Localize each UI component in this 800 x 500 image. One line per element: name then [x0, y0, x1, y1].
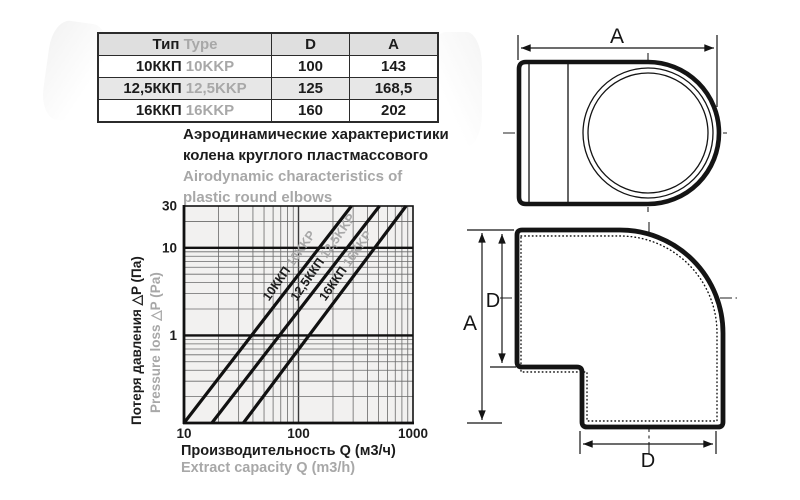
header-type-ru: Тип — [153, 36, 180, 53]
row-a-value: 202 — [350, 100, 437, 121]
y-tick-label: 30 — [162, 199, 177, 214]
row-type-ru: 10ККП — [136, 58, 182, 75]
dim-label-d-side: D — [486, 290, 500, 312]
elbow-technical-drawings: A A D D — [450, 10, 800, 490]
dim-label-a-top: A — [610, 25, 624, 48]
table-row: 10ККП 10KKP 100 143 — [99, 55, 437, 77]
chart-title-ru-2: колена круглого пластмассового — [183, 145, 449, 166]
header-type: Тип Type — [99, 34, 272, 55]
table-header-row: Тип Type D A — [99, 34, 437, 55]
y-tick-label: 10 — [162, 240, 177, 255]
spec-table: Тип Type D A 10ККП 10KKP 100 143 12,5ККП… — [97, 32, 439, 123]
row-type-ru: 12,5ККП — [123, 80, 181, 97]
header-type-en: Type — [184, 36, 218, 53]
elbow-top-view: A — [503, 25, 727, 212]
row-type-ru: 16ККП — [136, 102, 182, 119]
x-axis-title: Производительность Q (м3/ч) Extract capa… — [181, 443, 396, 477]
catalog-page: { "table": { "header": {"type_ru": "Тип"… — [0, 0, 800, 500]
dim-label-a-side: A — [463, 312, 477, 335]
row-d-value: 100 — [272, 56, 350, 77]
table-row: 12,5ККП 12,5KKP 125 168,5 — [99, 77, 437, 99]
x-axis-label-en: Extract capacity Q (m3/h) — [181, 460, 396, 477]
elbow-side-view: A D D — [463, 222, 737, 472]
x-tick-label: 100 — [287, 426, 310, 441]
x-tick-label: 10 — [176, 426, 191, 441]
row-d-value: 125 — [272, 78, 350, 99]
x-tick-label: 1000 — [398, 426, 428, 441]
header-a: A — [350, 34, 437, 55]
row-type-en: 16KKP — [186, 102, 234, 119]
y-axis-label-ru: Потеря давления △P (Па) — [129, 256, 145, 425]
y-tick-label: 1 — [169, 328, 177, 343]
x-axis-label-ru: Производительность Q (м3/ч) — [181, 443, 396, 460]
row-a-value: 168,5 — [350, 78, 437, 99]
chart-title-ru-1: Аэродинамические характеристики — [183, 124, 449, 145]
row-type-en: 12,5KKP — [186, 80, 247, 97]
row-a-value: 143 — [350, 56, 437, 77]
header-d: D — [272, 34, 350, 55]
y-axis-label-en: Pressure loss △P (Pa) — [148, 272, 164, 413]
elbow-side-outline — [517, 230, 723, 427]
row-d-value: 160 — [272, 100, 350, 121]
table-row: 16ККП 16KKP 160 202 — [99, 99, 437, 121]
row-type-en: 10KKP — [186, 58, 234, 75]
dim-label-d-bottom: D — [641, 450, 655, 472]
chart-title-en-1: Airodynamic characteristics of — [183, 166, 449, 187]
pressure-loss-chart: 10ККП 10KKP12,5ККП 12,5KKP16ККП 16KKP301… — [125, 195, 445, 455]
